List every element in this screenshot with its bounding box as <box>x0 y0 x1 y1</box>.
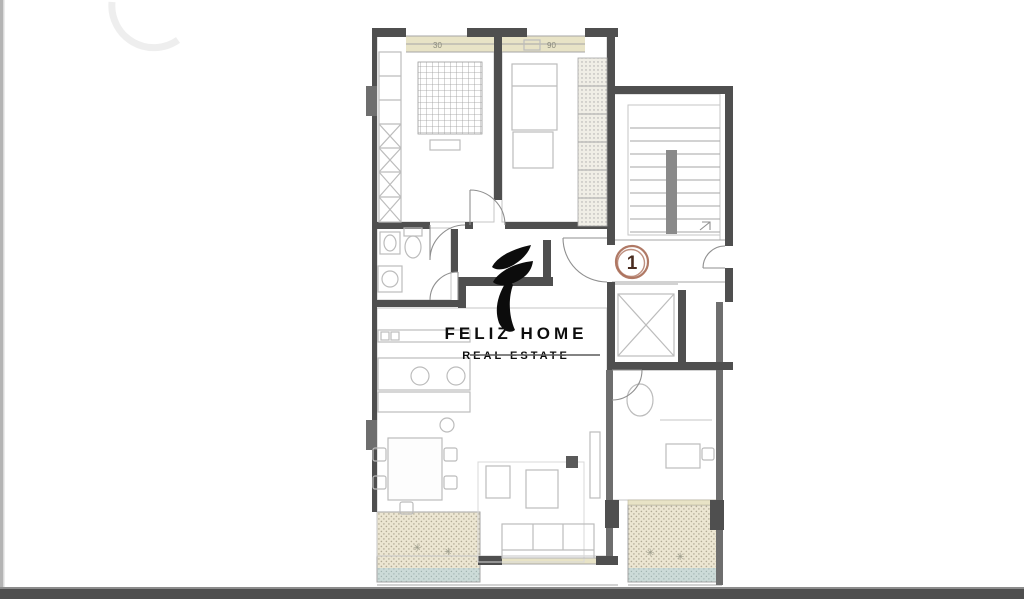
svg-text:✳: ✳ <box>676 552 684 563</box>
dimension-label-right: 90 <box>547 41 556 50</box>
tv <box>566 456 578 468</box>
svg-text:✳: ✳ <box>646 548 654 559</box>
bottom-border-band <box>0 589 1024 599</box>
floor-plan-drawing: ✳ ✳ ✳ ✳ <box>0 0 1024 599</box>
dimension-label-left: 30 <box>433 41 442 50</box>
balcony-plant-mark: ✳ <box>413 543 421 554</box>
brand-name: FELIZ HOME <box>445 324 588 343</box>
floor-plan-page: ✳ ✳ ✳ ✳ <box>0 0 1024 599</box>
balcony-left: ✳ ✳ <box>377 512 480 582</box>
grid-rug <box>418 62 482 134</box>
balcony-right: ✳ ✳ <box>628 505 720 582</box>
dining-table <box>388 438 442 500</box>
left-edge-border <box>0 0 3 599</box>
stair-stringer <box>666 150 677 234</box>
unit-number: 1 <box>627 253 638 274</box>
brand-tagline: REAL ESTATE <box>462 350 570 362</box>
